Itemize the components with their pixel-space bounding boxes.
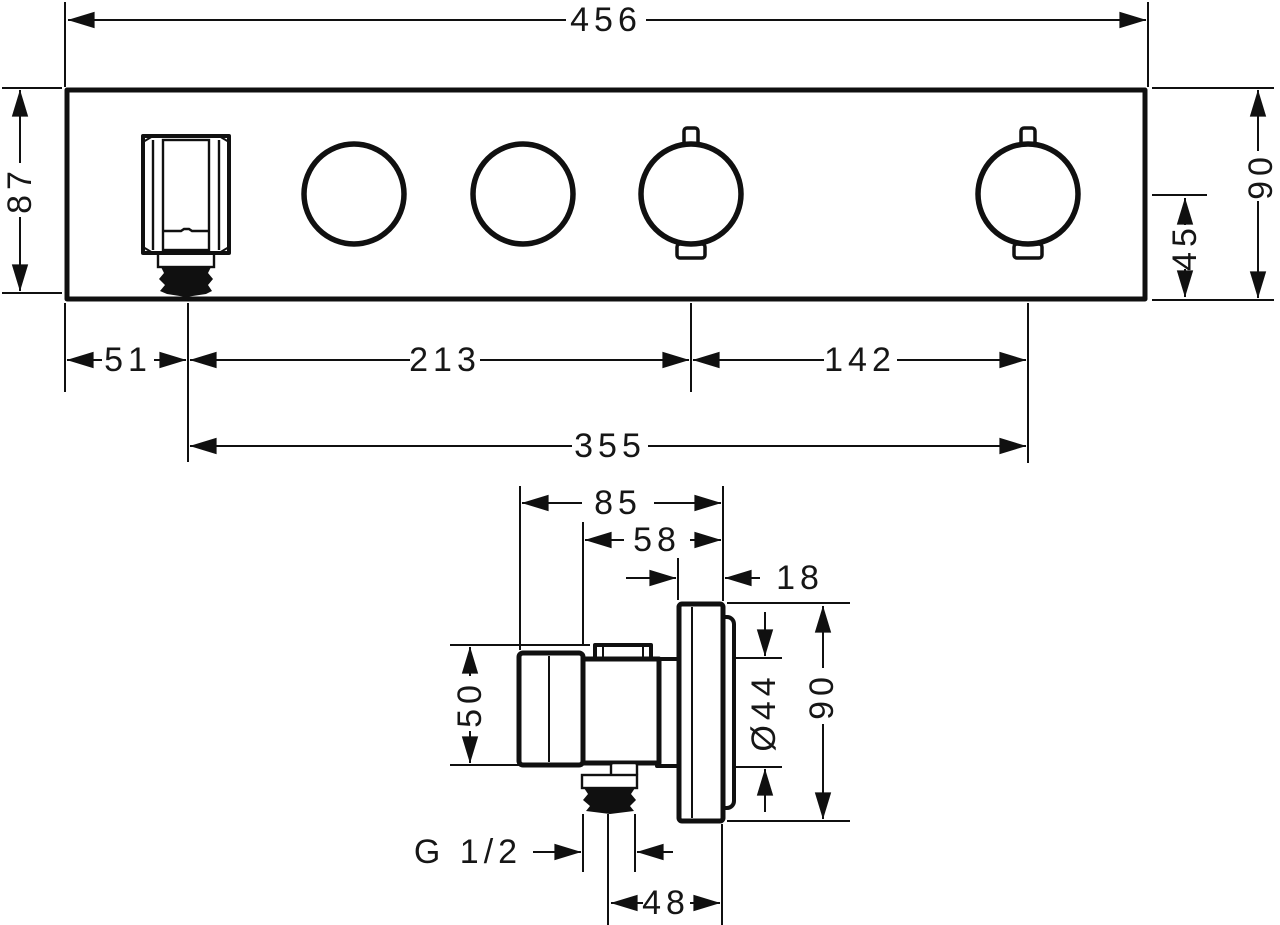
front-view: 456 87 90 45 51 213 <box>1 1 1280 465</box>
dim-total-height: 90 <box>1242 90 1280 298</box>
dim-label-diameter-44: Ø44 <box>745 672 783 751</box>
dim-label-18: 18 <box>776 559 824 597</box>
dim-plate-height: 90 <box>803 606 841 819</box>
dim-label-456: 456 <box>570 1 642 39</box>
knob-3-circle <box>641 144 741 244</box>
dim-label-85: 85 <box>594 484 642 522</box>
dim-face-height: 87 <box>1 90 39 291</box>
valve-body-outline <box>143 136 229 253</box>
escutcheon-plate <box>679 604 723 821</box>
dim-overall-width: 456 <box>68 1 1146 39</box>
outlet-thread <box>583 788 636 814</box>
dim-flange-diameter: Ø44 <box>745 612 783 812</box>
dim-label-142: 142 <box>824 341 896 379</box>
dim-left-offset: 51 <box>67 341 186 379</box>
side-view: 85 58 18 50 Ø44 90 <box>414 484 850 925</box>
dim-span-mid: 213 <box>190 341 689 379</box>
dim-body-height: 50 <box>451 647 489 763</box>
dim-label-45: 45 <box>1166 223 1204 271</box>
valve-thread <box>159 267 213 297</box>
dim-label-50: 50 <box>451 680 489 728</box>
dim-span-total: 355 <box>190 427 1026 465</box>
drawing-canvas: 456 87 90 45 51 213 <box>0 0 1280 925</box>
thread-size-label: G 1/2 <box>414 833 522 871</box>
dim-label-355: 355 <box>574 427 646 465</box>
dim-label-213: 213 <box>409 341 481 379</box>
outlet-valve-profile <box>519 604 734 821</box>
dim-label-87: 87 <box>1 166 39 214</box>
dim-outlet-offset: 48 <box>611 884 720 922</box>
dim-span-right: 142 <box>693 341 1026 379</box>
dim-depth-total: 85 <box>522 484 721 522</box>
dim-bottom-offset: 45 <box>1166 198 1204 297</box>
knob-4-circle <box>978 144 1078 244</box>
dim-depth-front: 58 <box>585 521 721 559</box>
dim-label-51: 51 <box>104 341 152 379</box>
outlet-collar <box>582 775 637 788</box>
dim-label-side-90: 90 <box>803 672 841 720</box>
knob-2 <box>473 144 573 244</box>
valve-housing <box>583 659 659 763</box>
knob-1 <box>304 144 404 244</box>
dim-plate-depth: 18 <box>626 559 824 597</box>
dim-label-58: 58 <box>633 521 681 559</box>
body-block <box>519 653 583 765</box>
dim-label-90: 90 <box>1242 152 1280 200</box>
dim-label-48: 48 <box>642 884 690 922</box>
technical-drawing: 456 87 90 45 51 213 <box>0 0 1280 925</box>
